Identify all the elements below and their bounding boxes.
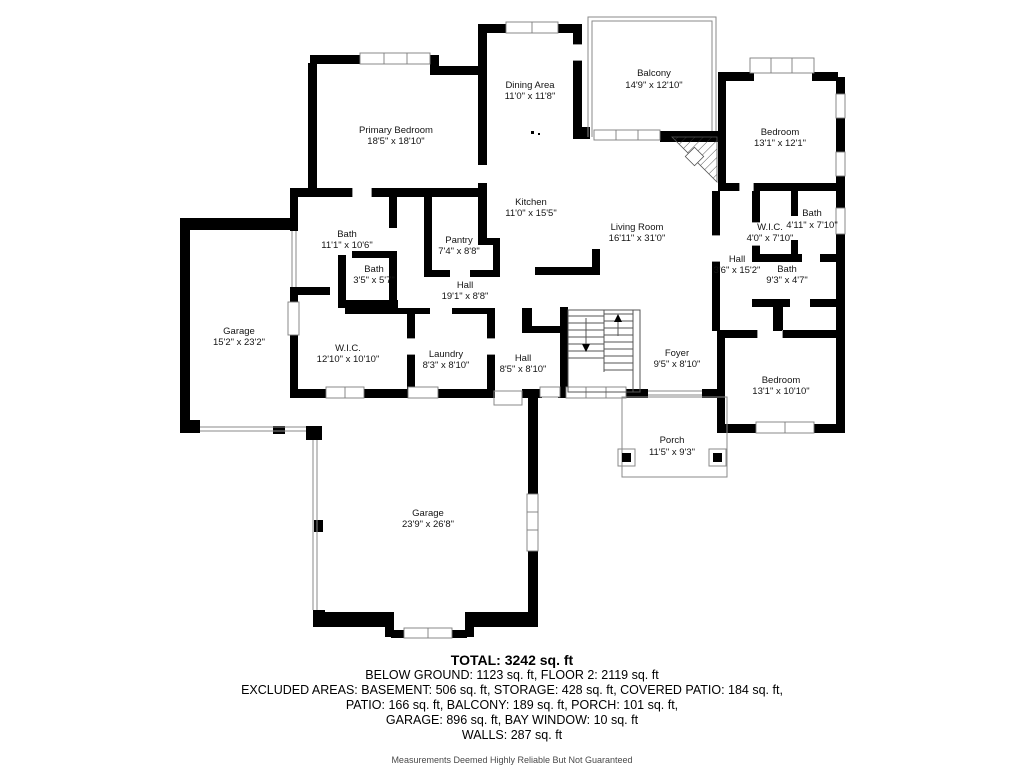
room-dims-primary-bedroom: 18'5" x 18'10" bbox=[367, 136, 424, 147]
room-dims-hall-lower: 8'5" x 8'10" bbox=[500, 364, 547, 375]
room-dims-garage-main: 23'9" x 26'8" bbox=[402, 519, 454, 530]
room-dims-bath-upper-left: 11'1" x 10'6" bbox=[321, 240, 372, 251]
floor-plan-canvas: Primary Bedroom 18'5" x 18'10" Dining Ar… bbox=[0, 0, 1024, 650]
room-name-garage-main: Garage bbox=[412, 508, 444, 519]
room-dims-porch: 11'5" x 9'3" bbox=[649, 447, 695, 458]
balcony-stairs-hatch bbox=[672, 137, 717, 182]
room-name-bedroom-top-right: Bedroom bbox=[761, 127, 800, 138]
room-name-wic-left: W.I.C. bbox=[335, 343, 361, 354]
room-name-laundry: Laundry bbox=[429, 349, 464, 360]
room-name-hall-right: Hall bbox=[729, 254, 745, 265]
interior-staircase bbox=[568, 310, 640, 392]
room-name-bath-right-upper: Bath bbox=[802, 208, 822, 219]
area-summary: TOTAL: 3242 sq. ft BELOW GROUND: 1123 sq… bbox=[0, 652, 1024, 765]
room-dims-hall-right: 3'6" x 15'2" bbox=[714, 265, 761, 276]
garage-door-left bbox=[200, 427, 306, 431]
room-dims-hall-upper: 19'1" x 8'8" bbox=[442, 291, 489, 302]
total-area-text: TOTAL: 3242 sq. ft bbox=[0, 652, 1024, 668]
room-name-bath-upper-left: Bath bbox=[337, 229, 357, 240]
room-dims-foyer: 9'5" x 8'10" bbox=[654, 359, 701, 370]
room-name-balcony: Balcony bbox=[637, 68, 671, 79]
room-dims-living-room: 16'11" x 31'0" bbox=[609, 233, 666, 244]
room-dims-wic-right: 4'0" x 7'10" bbox=[747, 233, 794, 244]
room-name-bath-small-left: Bath bbox=[364, 264, 384, 275]
summary-line-3: PATIO: 166 sq. ft, BALCONY: 189 sq. ft, … bbox=[0, 698, 1024, 713]
room-dims-bedroom-top-right: 13'1" x 12'1" bbox=[754, 138, 806, 149]
room-labels: Primary Bedroom 18'5" x 18'10" Dining Ar… bbox=[213, 68, 838, 530]
room-dims-laundry: 8'3" x 8'10" bbox=[423, 360, 470, 371]
room-dims-balcony: 14'9" x 12'10" bbox=[625, 80, 682, 91]
room-dims-bath-small-left: 3'5" x 5'7" bbox=[353, 275, 395, 286]
room-name-porch: Porch bbox=[660, 435, 685, 446]
floor-plan-page: Primary Bedroom 18'5" x 18'10" Dining Ar… bbox=[0, 0, 1024, 768]
room-dims-kitchen: 11'0" x 15'5" bbox=[505, 208, 556, 219]
room-name-dining-area: Dining Area bbox=[505, 80, 555, 91]
room-name-foyer: Foyer bbox=[665, 348, 689, 359]
room-dims-pantry: 7'4" x 8'8" bbox=[438, 246, 480, 257]
room-name-primary-bedroom: Primary Bedroom bbox=[359, 125, 433, 136]
wall-opening-left bbox=[292, 231, 296, 287]
bay-window bbox=[750, 58, 814, 73]
room-name-bedroom-bottom-right: Bedroom bbox=[762, 375, 801, 386]
room-dims-bath-right-upper: 4'11" x 7'10" bbox=[786, 220, 837, 231]
room-dims-bedroom-bottom-right: 13'1" x 10'10" bbox=[752, 386, 809, 397]
summary-line-1: BELOW GROUND: 1123 sq. ft, FLOOR 2: 2119… bbox=[0, 668, 1024, 683]
room-dims-garage-left: 15'2" x 23'2" bbox=[213, 337, 265, 348]
room-name-bath-right-lower: Bath bbox=[777, 264, 797, 275]
summary-line-4: GARAGE: 896 sq. ft, BAY WINDOW: 10 sq. f… bbox=[0, 713, 1024, 728]
room-name-hall-upper: Hall bbox=[457, 280, 473, 291]
room-name-hall-lower: Hall bbox=[515, 353, 531, 364]
front-step bbox=[494, 391, 522, 405]
stair-arrow-up bbox=[614, 314, 622, 322]
room-name-kitchen: Kitchen bbox=[515, 197, 547, 208]
room-name-garage-left: Garage bbox=[223, 326, 255, 337]
room-name-living-room: Living Room bbox=[611, 222, 664, 233]
summary-line-5: WALLS: 287 sq. ft bbox=[0, 728, 1024, 743]
room-dims-bath-right-lower: 9'3" x 4'7" bbox=[766, 275, 808, 286]
room-name-wic-right: W.I.C. bbox=[757, 222, 783, 233]
disclaimer-text: Measurements Deemed Highly Reliable But … bbox=[0, 755, 1024, 765]
room-dims-wic-left: 12'10" x 10'10" bbox=[317, 354, 380, 365]
wall-segments bbox=[180, 24, 845, 638]
porch-post bbox=[713, 453, 722, 462]
porch-post bbox=[622, 453, 631, 462]
summary-line-2: EXCLUDED AREAS: BASEMENT: 506 sq. ft, ST… bbox=[0, 683, 1024, 698]
room-name-pantry: Pantry bbox=[445, 235, 473, 246]
room-dims-dining-area: 11'0" x 11'8" bbox=[505, 91, 556, 102]
